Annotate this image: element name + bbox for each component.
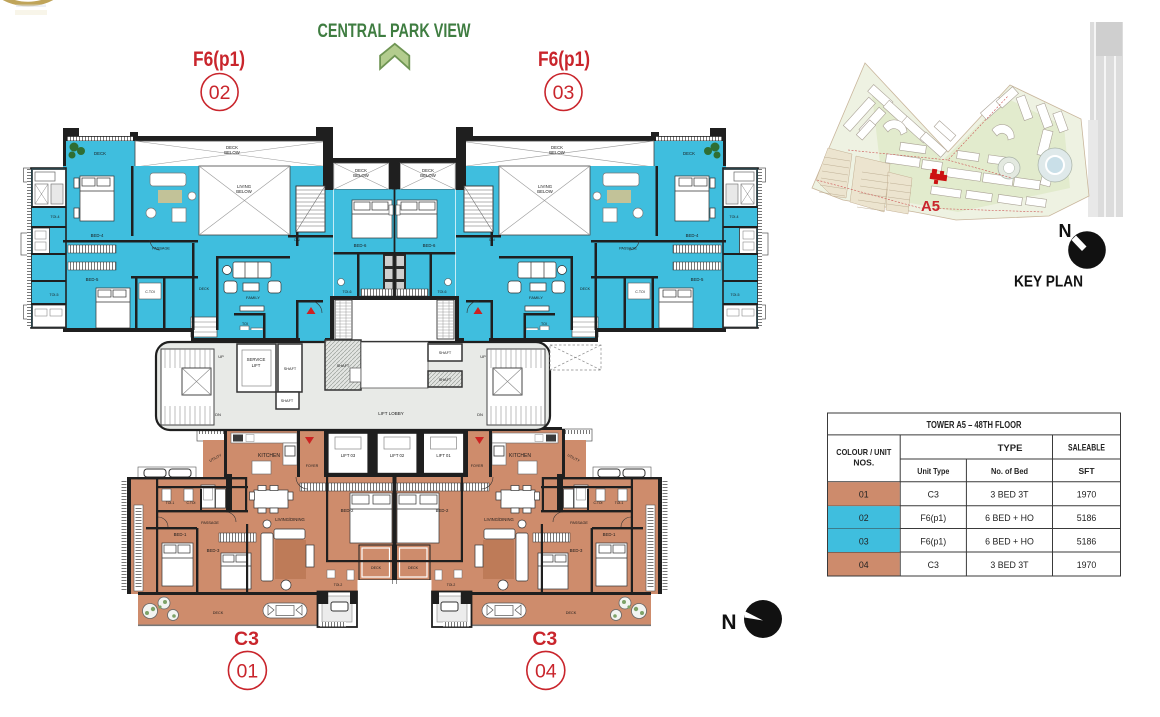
svg-text:F6(p1): F6(p1) <box>920 513 946 523</box>
svg-text:C3: C3 <box>928 490 939 500</box>
svg-text:3 BED 3T: 3 BED 3T <box>990 490 1029 500</box>
svg-text:SALEABLE: SALEABLE <box>1068 443 1105 453</box>
svg-text:SERVICE: SERVICE <box>247 357 266 362</box>
svg-text:SHAFT: SHAFT <box>281 399 294 403</box>
svg-text:6 BED + HO: 6 BED + HO <box>985 537 1034 547</box>
svg-text:03: 03 <box>553 82 575 104</box>
svg-text:UP: UP <box>480 354 486 359</box>
svg-text:No. of Bed: No. of Bed <box>991 466 1028 476</box>
svg-text:BELOW: BELOW <box>537 189 553 194</box>
svg-text:BED-2: BED-2 <box>436 508 449 513</box>
svg-text:01: 01 <box>859 490 869 500</box>
svg-text:DECK: DECK <box>408 566 419 570</box>
svg-text:TOI-4: TOI-4 <box>50 215 59 219</box>
svg-text:5186: 5186 <box>1077 537 1097 547</box>
svg-text:04: 04 <box>535 661 557 683</box>
svg-text:BELOW: BELOW <box>353 173 369 178</box>
svg-text:F6(p1): F6(p1) <box>920 537 946 547</box>
svg-text:N: N <box>721 611 736 634</box>
svg-text:LIFT: LIFT <box>252 363 261 368</box>
svg-text:TOI-5: TOI-5 <box>730 293 739 297</box>
svg-text:A5: A5 <box>921 198 940 215</box>
svg-text:TOI-1: TOI-1 <box>615 501 624 505</box>
svg-text:BED-3: BED-3 <box>207 548 220 553</box>
svg-text:TOI-1: TOI-1 <box>166 501 175 505</box>
svg-text:BED-4: BED-4 <box>91 233 104 238</box>
svg-text:3 BED 3T: 3 BED 3T <box>990 560 1029 570</box>
svg-text:DECK: DECK <box>213 611 224 615</box>
svg-text:5186: 5186 <box>1077 513 1097 523</box>
svg-text:UP: UP <box>218 354 224 359</box>
svg-text:PASSAGE: PASSAGE <box>570 521 588 525</box>
svg-text:LIFT LOBBY: LIFT LOBBY <box>378 411 403 416</box>
svg-text:BED-4: BED-4 <box>686 233 699 238</box>
svg-text:C.TOI: C.TOI <box>187 501 196 505</box>
svg-text:SHAFT: SHAFT <box>439 378 452 382</box>
svg-text:F6(p1): F6(p1) <box>193 48 245 71</box>
svg-text:BED-5: BED-5 <box>86 277 99 282</box>
svg-text:BED-1: BED-1 <box>174 532 187 537</box>
svg-text:BED-3: BED-3 <box>570 548 583 553</box>
svg-text:BELOW: BELOW <box>549 150 565 155</box>
svg-text:BED-2: BED-2 <box>341 508 354 513</box>
svg-text:BED-6: BED-6 <box>354 243 367 248</box>
svg-text:DN: DN <box>489 238 495 242</box>
svg-text:DN: DN <box>215 412 221 417</box>
svg-text:C.TOI: C.TOI <box>145 290 155 294</box>
svg-text:BED-6: BED-6 <box>423 243 436 248</box>
svg-text:DECK: DECK <box>371 566 382 570</box>
svg-text:DECK: DECK <box>199 287 210 291</box>
svg-text:N: N <box>1059 221 1072 241</box>
svg-text:TYPE: TYPE <box>998 443 1023 454</box>
svg-text:1970: 1970 <box>1077 560 1097 570</box>
svg-text:C3: C3 <box>928 560 939 570</box>
svg-text:KITCHEN: KITCHEN <box>258 453 280 459</box>
svg-text:LIVING/DINING: LIVING/DINING <box>484 517 514 522</box>
svg-text:FOYER: FOYER <box>471 464 484 468</box>
svg-text:KEY PLAN: KEY PLAN <box>1014 274 1083 291</box>
svg-text:DECK: DECK <box>94 151 106 156</box>
svg-text:LIVING/DINING: LIVING/DINING <box>275 517 305 522</box>
svg-text:C.TOI: C.TOI <box>594 501 603 505</box>
svg-text:04: 04 <box>859 560 869 570</box>
svg-text:DECK: DECK <box>566 611 577 615</box>
svg-text:DN: DN <box>294 238 300 242</box>
svg-text:TOI-5: TOI-5 <box>49 293 58 297</box>
svg-text:BED-1: BED-1 <box>603 532 616 537</box>
svg-text:02: 02 <box>209 82 231 104</box>
svg-text:03: 03 <box>859 537 869 547</box>
svg-text:F6(p1): F6(p1) <box>538 48 590 71</box>
svg-text:NOS.: NOS. <box>853 458 874 468</box>
svg-text:TOI: TOI <box>541 322 547 326</box>
svg-text:1970: 1970 <box>1077 490 1097 500</box>
svg-text:PASSAGE: PASSAGE <box>201 521 219 525</box>
svg-text:TOI-4: TOI-4 <box>729 215 738 219</box>
svg-text:BED-5: BED-5 <box>691 277 704 282</box>
svg-text:BELOW: BELOW <box>224 150 240 155</box>
svg-text:C3: C3 <box>532 628 557 650</box>
svg-text:02: 02 <box>859 513 869 523</box>
svg-text:SHAFT: SHAFT <box>337 364 350 368</box>
svg-text:TOI: TOI <box>242 322 248 326</box>
svg-text:DN: DN <box>477 412 483 417</box>
svg-text:SHAFT: SHAFT <box>439 351 452 355</box>
svg-text:Unit Type: Unit Type <box>917 466 949 476</box>
svg-text:C.TOI: C.TOI <box>635 290 645 294</box>
svg-text:CENTRAL PARK VIEW: CENTRAL PARK VIEW <box>318 21 471 42</box>
svg-text:TOWER A5 – 48TH FLOOR: TOWER A5 – 48TH FLOOR <box>927 420 1023 431</box>
svg-text:PASSAGE: PASSAGE <box>152 247 170 251</box>
svg-text:LIFT 01: LIFT 01 <box>436 453 451 458</box>
svg-text:BELOW: BELOW <box>236 189 252 194</box>
svg-text:BELOW: BELOW <box>420 173 436 178</box>
svg-text:TOI-6: TOI-6 <box>342 290 351 294</box>
svg-text:FAMILY: FAMILY <box>529 295 543 300</box>
svg-text:6 BED + HO: 6 BED + HO <box>985 513 1034 523</box>
svg-text:DECK: DECK <box>580 287 591 291</box>
svg-text:SHAFT: SHAFT <box>284 367 297 371</box>
svg-text:KITCHEN: KITCHEN <box>509 453 531 459</box>
svg-text:PASSAGE: PASSAGE <box>619 247 637 251</box>
svg-text:01: 01 <box>237 661 259 683</box>
svg-text:FOYER: FOYER <box>306 464 319 468</box>
svg-text:C3: C3 <box>234 628 259 650</box>
svg-text:LIFT 03: LIFT 03 <box>341 453 356 458</box>
svg-text:TOI-2: TOI-2 <box>334 583 343 587</box>
svg-text:LIFT 02: LIFT 02 <box>390 453 405 458</box>
svg-text:TOI-2: TOI-2 <box>447 583 456 587</box>
svg-text:TOI-6: TOI-6 <box>437 290 446 294</box>
svg-text:DECK: DECK <box>683 151 695 156</box>
svg-text:FAMILY: FAMILY <box>246 295 260 300</box>
svg-text:SFT: SFT <box>1078 466 1095 476</box>
svg-text:COLOUR / UNIT: COLOUR / UNIT <box>836 447 892 457</box>
